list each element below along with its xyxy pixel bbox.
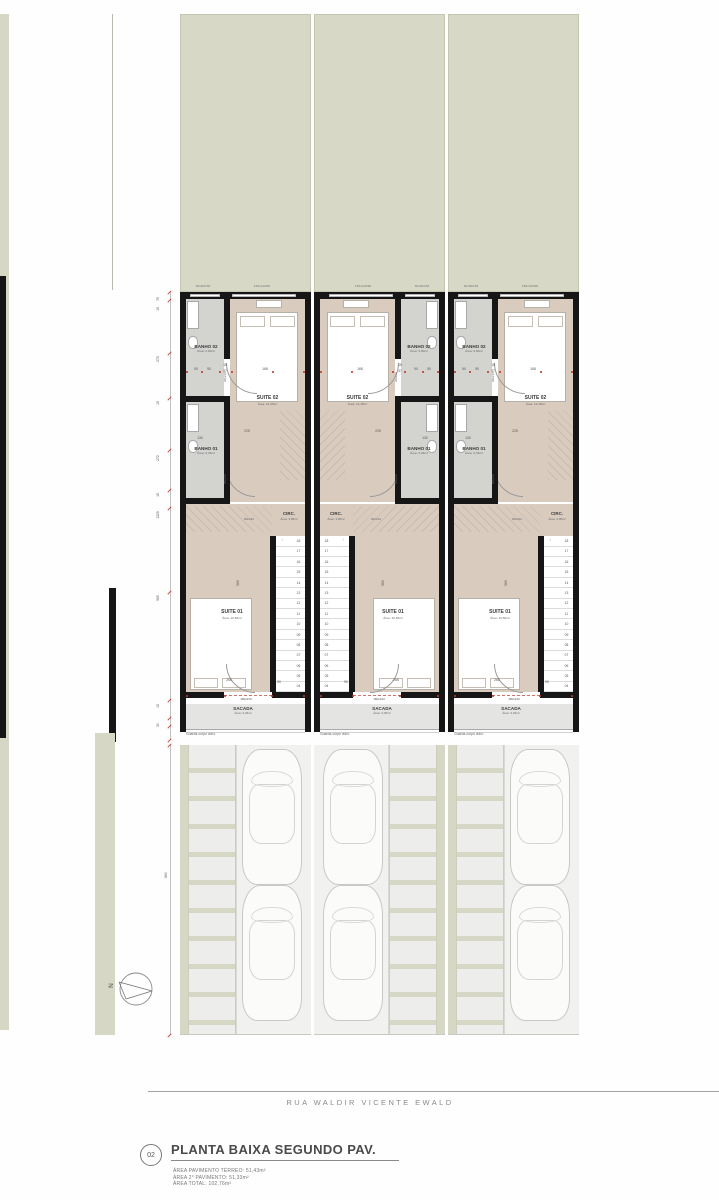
sacada-floor	[320, 704, 439, 729]
driveway-unit-1	[180, 745, 311, 1035]
wall	[395, 402, 401, 504]
stair-step-number: 11	[293, 609, 304, 619]
dimension-tick	[392, 371, 394, 373]
wall	[492, 402, 498, 504]
dimension-label: 15	[157, 696, 163, 716]
dimension-tick	[571, 371, 573, 373]
dimension-label: 225	[238, 430, 256, 436]
dimension-tick	[167, 290, 171, 294]
area-line: ÁREA TOTAL: 102,76m²	[173, 1181, 266, 1188]
stair-step-number: 06	[293, 661, 304, 671]
stair-step-number: 15	[321, 567, 332, 577]
bed	[373, 598, 435, 690]
wall	[180, 396, 230, 402]
stair-step-number: 06	[561, 661, 572, 671]
banho02-floor	[454, 299, 492, 396]
door-label: 80x210	[238, 518, 260, 524]
lane-line	[236, 745, 237, 1035]
dimension-label: 37	[488, 370, 498, 376]
dimension-tick	[167, 1033, 171, 1037]
backyard	[314, 14, 445, 292]
bedroom-floor	[454, 504, 573, 692]
stair-step-number: 16	[293, 557, 304, 567]
dimension-label: 15	[488, 364, 498, 370]
dimension-label: 30	[157, 715, 163, 735]
stair-step-number: 13	[321, 588, 332, 598]
room-label-banho02: BANHO 02	[452, 344, 496, 350]
dresser	[343, 300, 369, 308]
bedroom-floor	[320, 504, 439, 692]
suite02-floor	[320, 299, 395, 502]
door-arc	[226, 664, 255, 693]
floor-plan-unit-3: 181716151413121110090807060504↑60x60/150…	[448, 292, 579, 740]
banho02-floor	[186, 299, 224, 396]
dimension-label: 265	[488, 679, 506, 685]
paver-walkway	[456, 745, 504, 1035]
dimension-tick	[540, 371, 542, 373]
stair-step-number: 04	[293, 681, 304, 691]
drawing-title: PLANTA BAIXA SEGUNDO PAV.	[171, 1142, 376, 1157]
banho01-floor	[454, 402, 492, 498]
room-area-suite02: Área: 12,45m²	[320, 403, 395, 409]
room-area-banho01: Área: 3,34m²	[452, 452, 496, 458]
stair-shaft	[544, 536, 573, 692]
wall	[573, 292, 579, 732]
street-name: RUA WALDIR VICENTE EWALD	[250, 1098, 490, 1107]
guard-rail-line	[186, 732, 305, 733]
suite02-floor	[230, 299, 305, 502]
pillow	[270, 316, 295, 327]
guard-rail-line	[320, 729, 439, 730]
room-label-suite02: SUITE 02	[230, 396, 305, 402]
door-label: 90x210	[395, 366, 401, 388]
dimension-label: 15	[220, 364, 230, 370]
dimension-tick	[437, 371, 439, 373]
bed	[190, 598, 252, 690]
driveway-unit-2	[314, 745, 445, 1035]
room-area-circ: Área: 3,05m²	[538, 518, 576, 524]
car	[242, 749, 302, 885]
vanity	[187, 301, 199, 329]
dimension-label: 90	[273, 681, 285, 687]
wall	[180, 498, 230, 504]
room-area-circ: Área: 3,05m²	[317, 518, 355, 524]
wall	[224, 299, 230, 359]
stair-up-arrow: ↑	[545, 538, 555, 544]
window-label: 60x60/150	[450, 285, 492, 291]
dimension-tick	[186, 371, 188, 373]
stair-step-number: 10	[561, 619, 572, 629]
guard-rail-line	[186, 729, 305, 730]
dimension-label: 130	[460, 437, 476, 443]
closet-hatch	[548, 410, 573, 480]
room-area-banho02: Área: 3,00m²	[184, 350, 228, 356]
sacada-floor	[454, 704, 573, 729]
stair-step-number: 07	[293, 650, 304, 660]
floor-plan-unit-2: 181716151413121110090807060504↑60x60/150…	[314, 292, 445, 740]
window	[190, 294, 220, 298]
drawing-number-badge: 02	[140, 1144, 162, 1166]
dimension-label: 168	[256, 368, 274, 374]
stair-step-number: 14	[321, 578, 332, 588]
stair-step-number: 12	[293, 598, 304, 608]
toilet	[456, 440, 466, 453]
guard-rail-label: Guarda-corpo vidro	[186, 733, 246, 739]
bed	[236, 312, 298, 402]
door-arc	[494, 363, 525, 394]
dimension-label: 265	[220, 679, 238, 685]
window-label: 60x60/150	[401, 285, 443, 291]
stair-step-number: 11	[561, 609, 572, 619]
closet-hatch	[320, 410, 345, 480]
stair-step-number: 17	[561, 546, 572, 556]
wall	[492, 299, 498, 359]
dimension-tick	[352, 695, 354, 697]
door-arc	[494, 664, 523, 693]
door-arc	[370, 468, 399, 497]
floor-plan-sheet: 181716151413121110090807060504↑60x60/150…	[0, 0, 719, 1200]
toilet	[456, 336, 466, 349]
dimension-tick	[272, 371, 274, 373]
north-label: N	[108, 983, 115, 988]
door-label: 180x210	[502, 698, 526, 704]
room-label-sacada: SACADA	[478, 706, 544, 712]
room-label-suite01: SUITE 01	[351, 610, 435, 616]
dimension-tick	[351, 371, 353, 373]
dimension-label: 273	[157, 349, 163, 369]
dimension-label: 90	[541, 681, 553, 687]
dimension-tick	[167, 298, 171, 302]
paver-walkway	[389, 745, 437, 1035]
lot-unit-2: 181716151413121110090807060504↑60x60/150…	[314, 14, 445, 1035]
dresser	[524, 300, 550, 308]
door-label: 80x210	[395, 468, 401, 490]
room-label-suite01: SUITE 01	[458, 610, 542, 616]
dimension-tick	[167, 488, 171, 492]
dimension-label: 15	[395, 364, 405, 370]
room-label-sacada: SACADA	[210, 706, 276, 712]
stair-numbers: 181716151413121110090807060504	[561, 536, 572, 692]
dimension-tick	[320, 695, 322, 697]
area-summary: ÁREA PAVIMENTO TÉRREO: 51,43m² ÁREA 2° P…	[173, 1168, 266, 1188]
toilet	[427, 336, 437, 349]
room-label-circ: CIRC.	[538, 512, 576, 518]
wall	[305, 292, 311, 732]
suite02-floor	[498, 299, 573, 502]
wall	[401, 692, 445, 698]
pillow	[538, 316, 563, 327]
stair-step-number: 05	[293, 671, 304, 681]
stair-step-number: 12	[561, 598, 572, 608]
stair-step-number: 13	[293, 588, 304, 598]
dimension-line	[170, 292, 171, 740]
lane-line	[388, 745, 389, 1035]
dresser	[256, 300, 282, 308]
wall	[180, 692, 224, 698]
vanity	[426, 404, 438, 432]
dimension-label: 272	[157, 448, 163, 468]
dimension-tick	[303, 371, 305, 373]
stair-step-number: 13	[561, 588, 572, 598]
stair-step-number: 04	[561, 681, 572, 691]
neighbor-boundary-line	[112, 14, 113, 290]
dimension-tick	[399, 695, 401, 697]
pillow	[240, 316, 265, 327]
dimension-label: 15	[157, 299, 163, 319]
dimension-tick	[499, 371, 501, 373]
street-line	[148, 1091, 719, 1092]
wall	[395, 396, 445, 402]
dimension-tick	[454, 371, 456, 373]
door-label: 80x210	[492, 468, 498, 490]
pillow	[360, 316, 385, 327]
bed	[327, 312, 389, 402]
door-arc	[494, 468, 523, 497]
stair-step-number: 15	[293, 567, 304, 577]
door-label: 90x210	[492, 366, 498, 388]
stair-step-number: 05	[561, 671, 572, 681]
dimension-label: 168	[351, 368, 369, 374]
room-area-sacada: Área: 3,33m²	[210, 712, 276, 718]
room-area-suite01: Área: 10,50m²	[351, 617, 435, 623]
room-area-suite01: Área: 10,50m²	[458, 617, 542, 623]
title-underline	[171, 1160, 399, 1161]
room-label-suite01: SUITE 01	[190, 610, 274, 616]
dimension-label: 565	[157, 588, 163, 608]
dimension-tick	[224, 695, 226, 697]
room-area-banho02: Área: 3,00m²	[452, 350, 496, 356]
dimension-label: 50	[423, 368, 435, 374]
vanity	[426, 301, 438, 329]
door-label: 180x210	[367, 698, 391, 704]
wall	[224, 402, 230, 504]
car	[323, 749, 383, 885]
pillow	[462, 678, 486, 688]
door-label: 80x210	[506, 518, 528, 524]
stair-step-number: 16	[321, 557, 332, 567]
wall	[270, 536, 276, 692]
stair-step-number: 08	[321, 640, 332, 650]
toilet	[427, 440, 437, 453]
stair-step-number: 18	[321, 536, 332, 546]
lot-strip	[180, 745, 188, 1035]
pillow	[407, 678, 431, 688]
closet-hatch	[186, 506, 272, 532]
dimension-tick	[167, 351, 171, 355]
pillow	[194, 678, 218, 688]
dimension-label: 90	[203, 368, 215, 374]
wall	[314, 292, 320, 732]
sacada-door-line	[353, 695, 401, 696]
dimension-tick	[219, 371, 221, 373]
north-arrow-icon	[112, 966, 158, 1012]
window-label: 150x120/90	[329, 285, 397, 291]
pillow	[508, 316, 533, 327]
room-area-banho01: Área: 3,34m²	[397, 452, 441, 458]
dimension-tick	[201, 371, 203, 373]
dimension-tick	[539, 695, 541, 697]
stair-numbers: 181716151413121110090807060504	[293, 536, 304, 692]
pillow	[222, 678, 246, 688]
dimension-label: 90	[471, 368, 483, 374]
window	[405, 294, 435, 298]
paver-walkway	[188, 745, 236, 1035]
car	[510, 885, 570, 1021]
vanity	[187, 404, 199, 432]
door-label: 80x210	[365, 518, 387, 524]
stair-step-number: 16	[561, 557, 572, 567]
wall	[395, 498, 445, 504]
dimension-tick	[422, 371, 424, 373]
window-label: 150x120/90	[228, 285, 296, 291]
stair-step-number: 09	[561, 630, 572, 640]
wall	[448, 396, 498, 402]
room-label-circ: CIRC.	[317, 512, 355, 518]
wall	[180, 292, 186, 732]
closet-hatch	[454, 506, 540, 532]
room-area-circ: Área: 3,05m²	[270, 518, 308, 524]
room-area-suite02: Área: 12,45m²	[230, 403, 305, 409]
dimension-label: 225	[506, 430, 524, 436]
toilet	[188, 336, 198, 349]
dimension-label: 50	[190, 368, 202, 374]
wall	[314, 292, 445, 299]
wall	[395, 299, 401, 359]
wall	[439, 292, 445, 732]
wall	[540, 692, 579, 698]
floor-plan-unit-1: 181716151413121110090807060504↑60x60/150…	[180, 292, 311, 740]
sacada-door-line	[224, 695, 272, 696]
room-label-banho02: BANHO 02	[184, 344, 228, 350]
dimension-tick	[167, 396, 171, 400]
dimension-tick	[167, 724, 171, 728]
room-label-banho01: BANHO 01	[184, 446, 228, 452]
stair-step-number: 18	[293, 536, 304, 546]
pillow	[330, 316, 355, 327]
wall	[272, 692, 311, 698]
dimension-tick	[469, 371, 471, 373]
window-label: 60x60/150	[182, 285, 224, 291]
dimension-label: 37	[220, 370, 230, 376]
room-label-banho02: BANHO 02	[397, 344, 441, 350]
door-arc	[370, 664, 399, 693]
dimension-label: 565	[382, 573, 388, 593]
dimension-label: 225	[369, 430, 387, 436]
stair-step-number: 11	[321, 609, 332, 619]
bedroom-floor	[186, 504, 305, 692]
window	[458, 294, 488, 298]
lot-unit-3: 181716151413121110090807060504↑60x60/150…	[448, 14, 579, 1035]
dimension-label: 37	[395, 370, 405, 376]
stair-step-number: 15	[561, 567, 572, 577]
stair-shaft	[320, 536, 349, 692]
wall	[448, 692, 492, 698]
wall	[349, 536, 355, 692]
north-arrow: N	[112, 966, 158, 1012]
dimension-tick	[404, 371, 406, 373]
window	[500, 294, 564, 298]
car	[323, 885, 383, 1021]
dimension-label: 15	[157, 485, 163, 505]
lot-strip	[448, 745, 456, 1035]
dimension-label: 75	[157, 289, 163, 309]
wall	[538, 536, 544, 692]
room-area-sacada: Área: 3,33m²	[478, 712, 544, 718]
stair-step-number: 09	[321, 630, 332, 640]
stair-step-number: 05	[321, 671, 332, 681]
room-area-suite02: Área: 12,45m²	[498, 403, 573, 409]
stair-step-number: 10	[293, 619, 304, 629]
stair-step-number: 08	[561, 640, 572, 650]
wall	[448, 292, 454, 732]
vanity	[455, 301, 467, 329]
dimension-tick	[167, 716, 171, 720]
driveway-unit-3	[448, 745, 579, 1035]
lot-unit-1: 181716151413121110090807060504↑60x60/150…	[180, 14, 311, 1035]
stair-step-number: 07	[321, 650, 332, 660]
stair-step-number: 09	[293, 630, 304, 640]
door-arc	[226, 468, 255, 497]
guard-rail-line	[454, 729, 573, 730]
room-area-suite01: Área: 10,50m²	[190, 617, 274, 623]
dimension-label: 265	[387, 679, 405, 685]
area-line: ÁREA PAVIMENTO TÉRREO: 51,43m²	[173, 1168, 266, 1175]
guard-rail-label: Guarda-corpo vidro	[320, 733, 380, 739]
door-label: 80x210	[224, 468, 230, 490]
guard-rail-line	[454, 732, 573, 733]
guard-rail-line	[320, 732, 439, 733]
room-label-suite02: SUITE 02	[498, 396, 573, 402]
sacada-door-line	[492, 695, 540, 696]
stair-step-number: 10	[321, 619, 332, 629]
room-area-sacada: Área: 3,45m²	[349, 712, 415, 718]
stair-shaft	[276, 536, 305, 692]
dimension-label: 1325	[157, 505, 163, 525]
backyard	[448, 14, 579, 292]
stair-step-number: 14	[293, 578, 304, 588]
dimension-tick	[320, 371, 322, 373]
toilet	[188, 440, 198, 453]
door-label: 90x210	[224, 366, 230, 388]
stair-step-number: 17	[321, 546, 332, 556]
dimension-label: 168	[524, 368, 542, 374]
dimension-tick	[167, 698, 171, 702]
room-label-sacada: SACADA	[349, 706, 415, 712]
banho01-floor	[401, 402, 439, 498]
lot-strip	[437, 745, 445, 1035]
dimension-label: 130	[417, 437, 433, 443]
door-arc	[226, 363, 257, 394]
room-area-banho01: Área: 3,34m²	[184, 452, 228, 458]
door-label: 180x210	[234, 698, 258, 704]
window	[329, 294, 393, 298]
dimension-tick	[271, 695, 273, 697]
dimension-label: 660	[165, 865, 171, 885]
stair-up-arrow: ↑	[338, 538, 348, 544]
dimension-label: 130	[192, 437, 208, 443]
dimension-tick	[454, 695, 456, 697]
sacada-floor	[186, 704, 305, 729]
door-arc	[368, 363, 399, 394]
car	[510, 749, 570, 885]
room-label-banho01: BANHO 01	[397, 446, 441, 452]
closet-hatch	[353, 506, 439, 532]
wall	[314, 692, 353, 698]
stair-step-number: 12	[321, 598, 332, 608]
dimension-tick	[167, 590, 171, 594]
stair-step-number: 04	[321, 681, 332, 691]
stair-up-arrow: ↑	[277, 538, 287, 544]
